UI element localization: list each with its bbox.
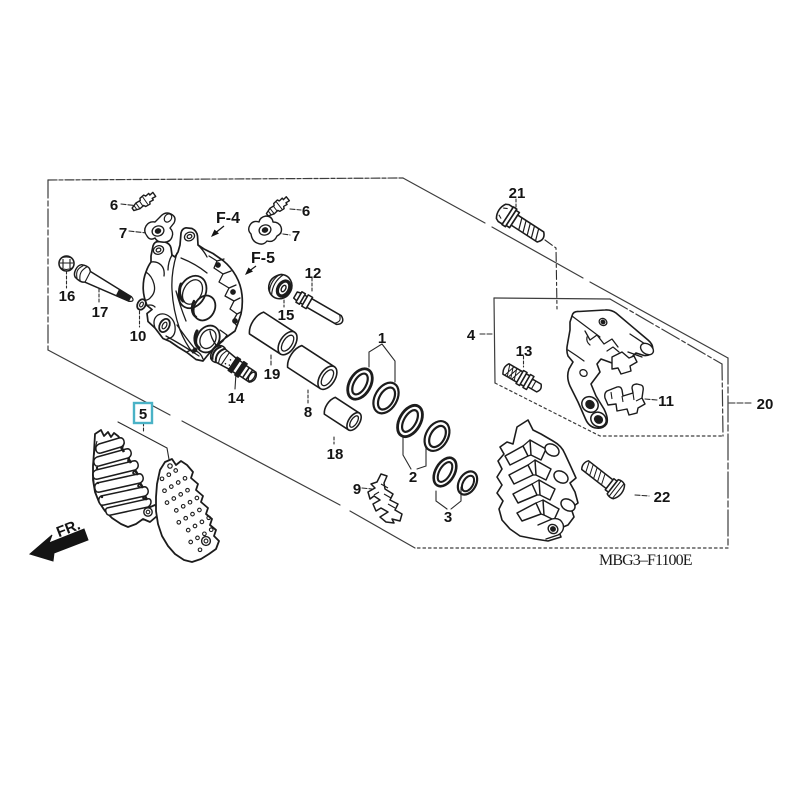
svg-text:10: 10	[130, 328, 147, 345]
svg-text:15: 15	[278, 307, 295, 324]
svg-text:11: 11	[658, 393, 674, 410]
svg-text:5: 5	[139, 406, 147, 423]
svg-text:F-5: F-5	[251, 250, 275, 267]
svg-text:7: 7	[292, 228, 300, 245]
svg-text:MBG3–F1100E: MBG3–F1100E	[599, 552, 692, 569]
svg-text:4: 4	[467, 327, 476, 344]
svg-text:2: 2	[409, 469, 417, 486]
svg-text:9: 9	[353, 481, 361, 498]
svg-text:8: 8	[304, 404, 312, 421]
svg-text:21: 21	[509, 185, 526, 202]
svg-text:22: 22	[654, 489, 671, 506]
svg-text:19: 19	[264, 366, 281, 383]
svg-text:6: 6	[110, 197, 118, 214]
svg-text:16: 16	[59, 288, 76, 305]
svg-text:12: 12	[305, 265, 322, 282]
svg-text:7: 7	[119, 225, 127, 242]
svg-text:3: 3	[444, 509, 452, 526]
svg-text:14: 14	[228, 390, 245, 407]
svg-text:F-4: F-4	[216, 210, 240, 227]
svg-text:17: 17	[92, 304, 109, 321]
svg-text:6: 6	[302, 203, 310, 220]
svg-text:18: 18	[327, 446, 344, 463]
svg-text:13: 13	[516, 343, 533, 360]
svg-text:1: 1	[378, 330, 386, 347]
svg-text:20: 20	[757, 396, 774, 413]
